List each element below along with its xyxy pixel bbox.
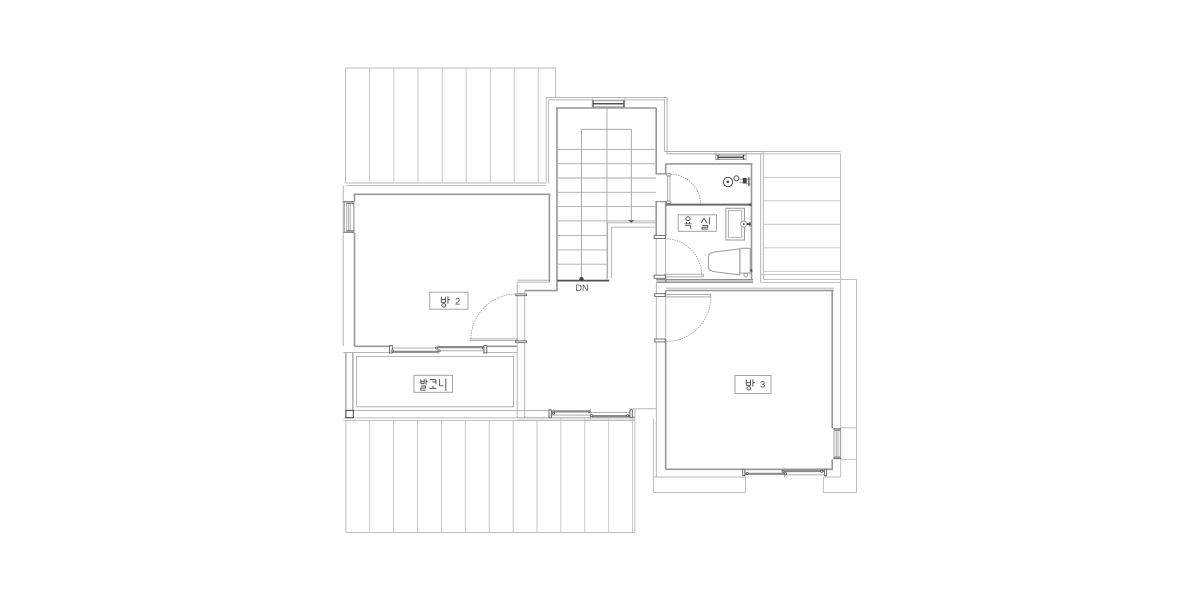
svg-text:3: 3 <box>760 379 765 390</box>
svg-text:2: 2 <box>455 296 460 307</box>
svg-text:DN: DN <box>576 283 589 293</box>
